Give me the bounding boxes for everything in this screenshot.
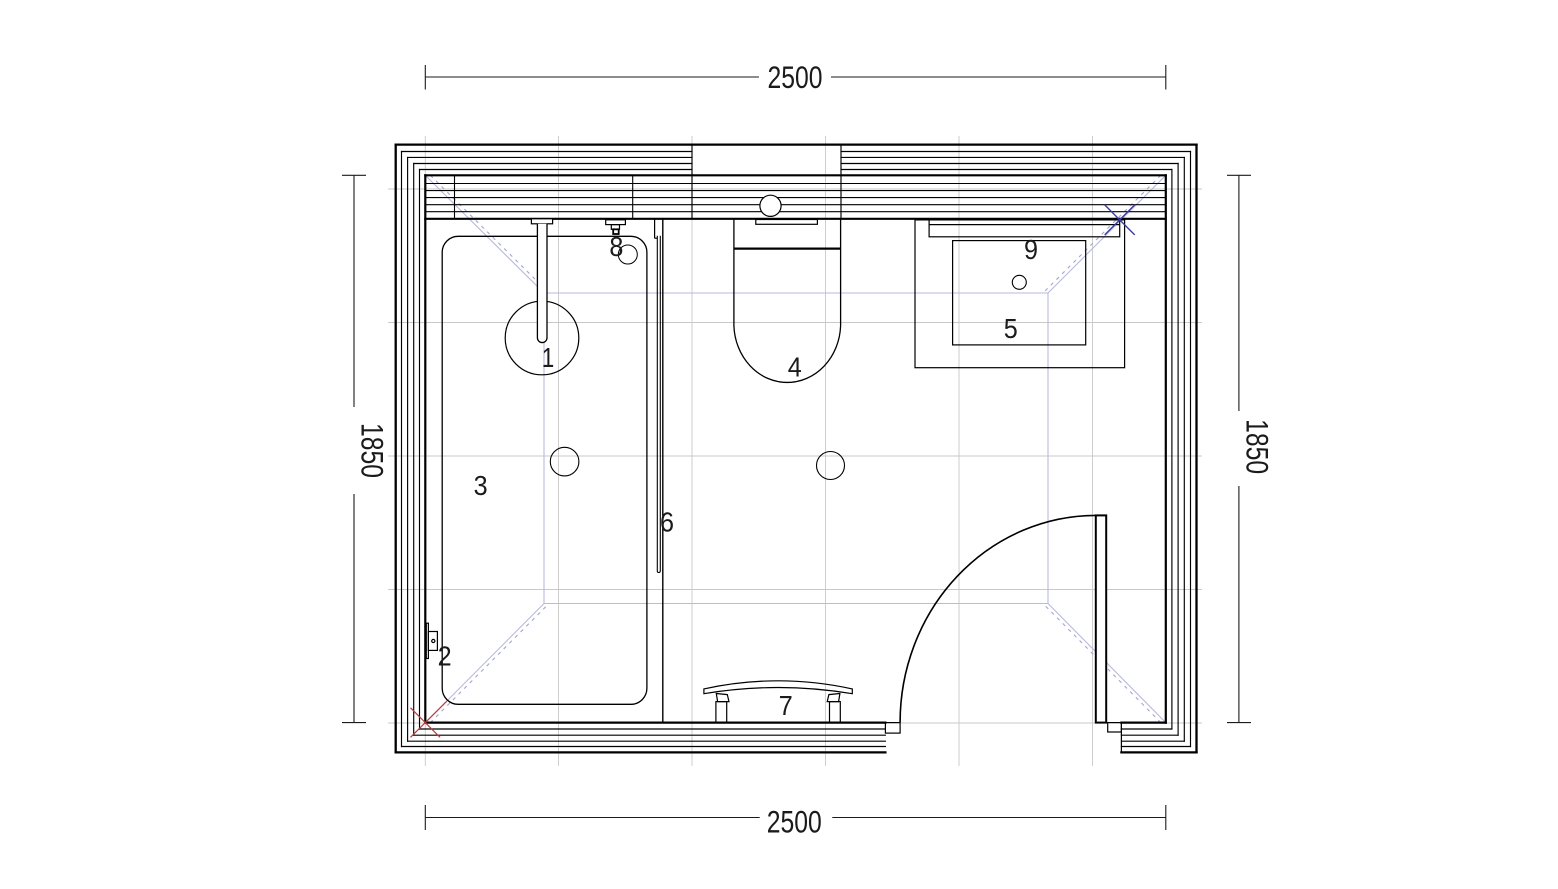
svg-text:6: 6 (660, 507, 674, 538)
svg-text:5: 5 (1004, 313, 1018, 344)
svg-text:1850: 1850 (355, 423, 391, 478)
svg-text:9: 9 (1024, 234, 1038, 265)
svg-text:2: 2 (438, 641, 452, 672)
svg-text:2500: 2500 (767, 803, 822, 839)
svg-text:1: 1 (542, 342, 555, 373)
svg-text:7: 7 (779, 690, 793, 721)
svg-text:4: 4 (788, 352, 802, 383)
svg-text:2500: 2500 (768, 59, 823, 95)
svg-text:3: 3 (474, 470, 488, 501)
svg-text:1850: 1850 (1240, 419, 1276, 474)
svg-text:8: 8 (609, 231, 623, 262)
